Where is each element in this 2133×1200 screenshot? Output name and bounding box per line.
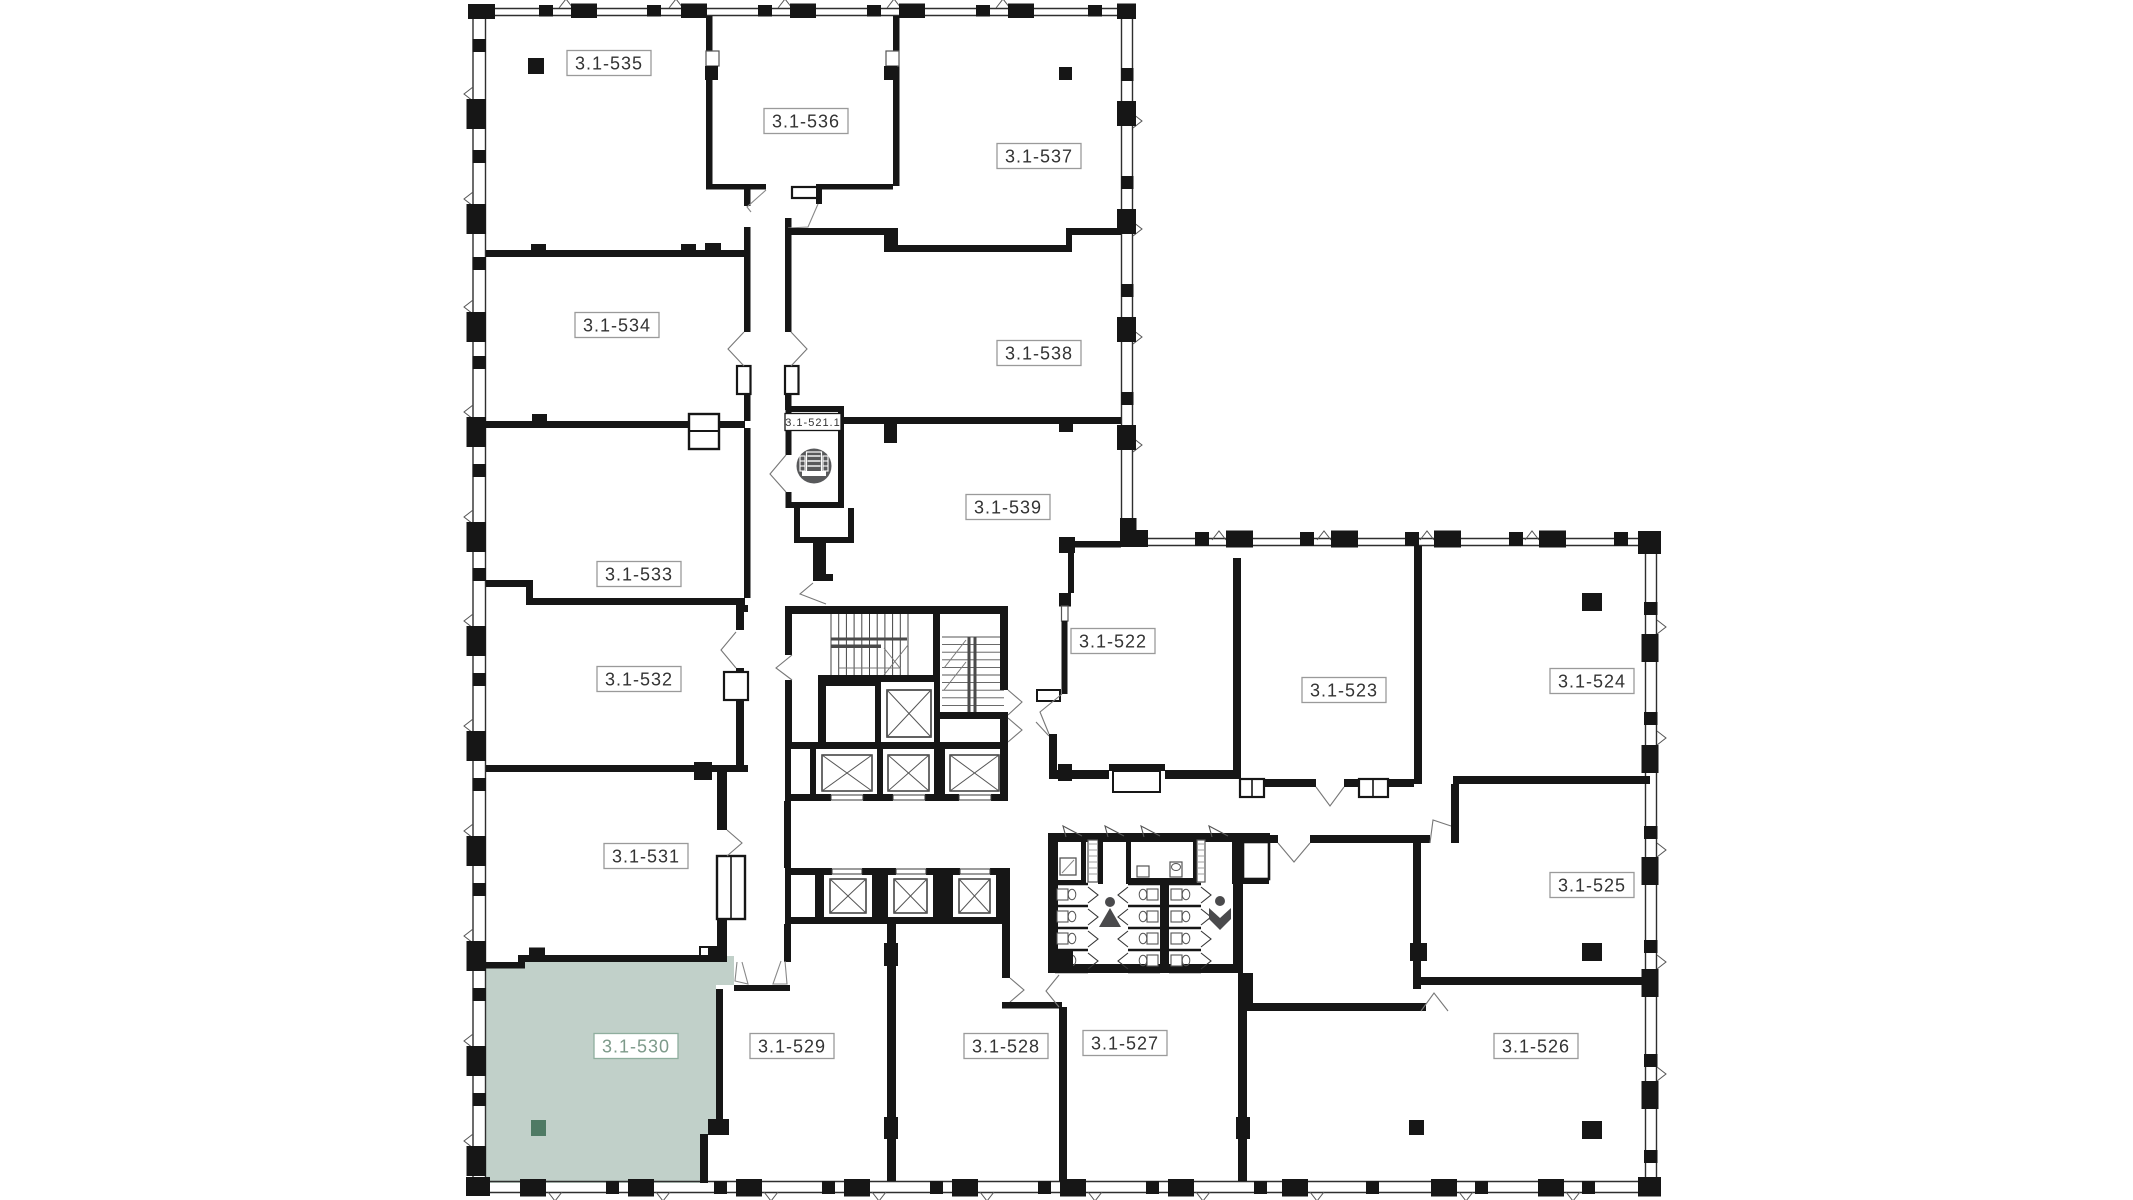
svg-text:3.1-533: 3.1-533 <box>605 564 673 584</box>
svg-text:3.1-526: 3.1-526 <box>1502 1036 1570 1056</box>
svg-text:3.1-523: 3.1-523 <box>1310 680 1378 700</box>
svg-text:3.1-536: 3.1-536 <box>772 111 840 131</box>
svg-text:3.1-529: 3.1-529 <box>758 1036 826 1056</box>
svg-text:3.1-528: 3.1-528 <box>972 1036 1040 1056</box>
svg-text:3.1-522: 3.1-522 <box>1079 631 1147 651</box>
svg-text:3.1-525: 3.1-525 <box>1558 875 1626 895</box>
svg-text:3.1-534: 3.1-534 <box>583 315 651 335</box>
svg-text:3.1-530: 3.1-530 <box>602 1036 670 1056</box>
svg-text:3.1-524: 3.1-524 <box>1558 671 1626 691</box>
svg-text:3.1-538: 3.1-538 <box>1005 343 1073 363</box>
svg-text:3.1-537: 3.1-537 <box>1005 146 1073 166</box>
svg-text:3.1-539: 3.1-539 <box>974 497 1042 517</box>
svg-text:3.1-531: 3.1-531 <box>612 846 680 866</box>
svg-text:3.1-535: 3.1-535 <box>575 53 643 73</box>
svg-text:3.1-521.1: 3.1-521.1 <box>785 417 840 429</box>
svg-text:3.1-532: 3.1-532 <box>605 669 673 689</box>
svg-text:3.1-527: 3.1-527 <box>1091 1033 1159 1053</box>
